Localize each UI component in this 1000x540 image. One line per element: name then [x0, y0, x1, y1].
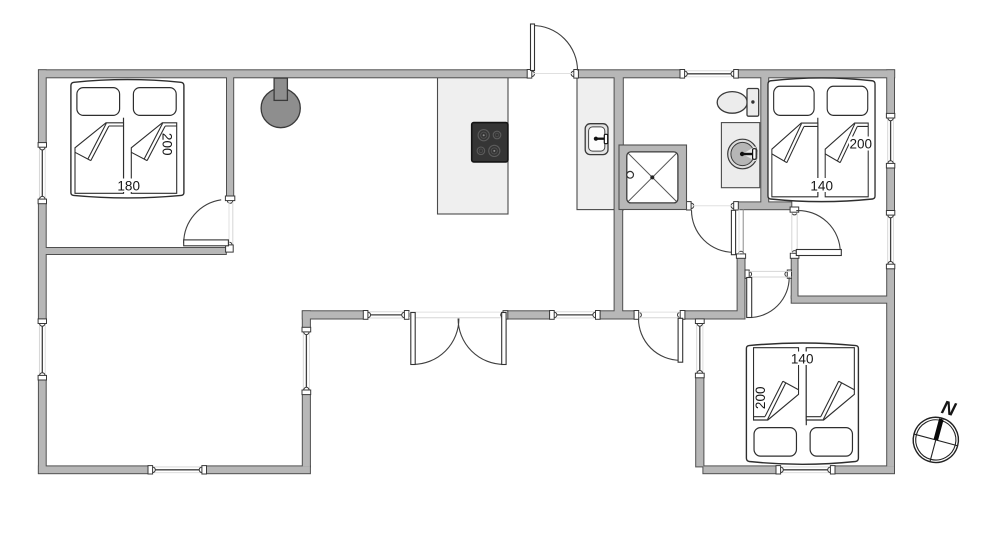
svg-text:140: 140 [791, 352, 814, 367]
svg-text:180: 180 [117, 179, 140, 194]
svg-text:140: 140 [810, 178, 833, 193]
svg-text:200: 200 [160, 133, 175, 156]
svg-text:200: 200 [753, 387, 768, 410]
svg-text:200: 200 [850, 137, 873, 152]
